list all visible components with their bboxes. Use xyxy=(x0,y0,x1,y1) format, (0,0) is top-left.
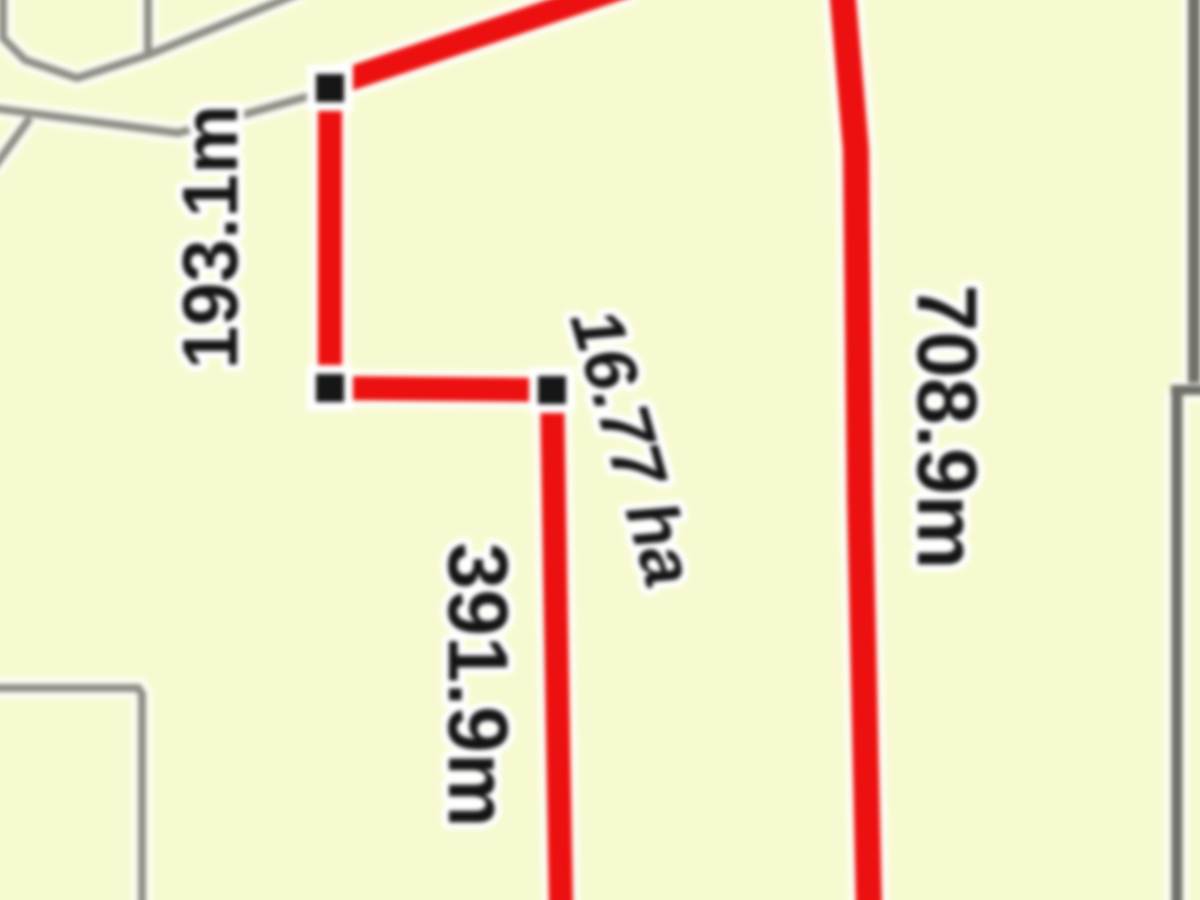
vertex-marker xyxy=(538,376,566,404)
map-viewport[interactable]: 193.1m391.9m708.9m16.77 ha xyxy=(0,0,1200,900)
measurement-label: 391.9m xyxy=(431,543,525,828)
cadastral-map: 193.1m391.9m708.9m16.77 ha xyxy=(0,0,1200,900)
measurement-label: 193.1m xyxy=(166,105,254,370)
vertex-marker xyxy=(316,74,344,102)
vertex-marker xyxy=(316,374,344,402)
measurement-label: 708.9m xyxy=(900,285,994,570)
